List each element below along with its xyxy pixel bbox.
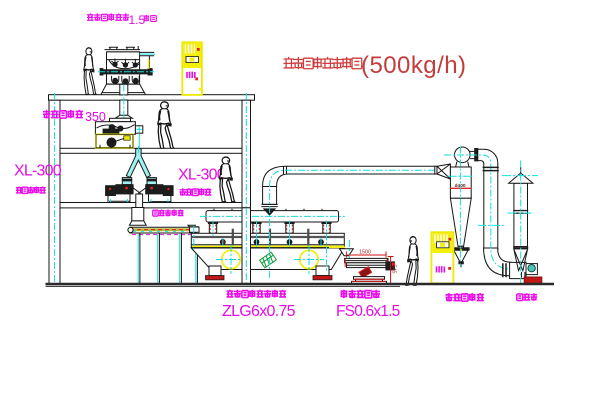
- svg-text:FS0.6x1.5: FS0.6x1.5: [336, 303, 400, 320]
- svg-text:XL-300: XL-300: [178, 166, 226, 183]
- svg-text:1.5: 1.5: [129, 13, 146, 27]
- svg-text:1500: 1500: [359, 249, 371, 255]
- svg-text:ZLG6x0.75: ZLG6x0.75: [222, 303, 296, 320]
- svg-text:(500kg/h): (500kg/h): [361, 52, 466, 79]
- svg-text:545: 545: [391, 265, 397, 274]
- svg-text:XL-300: XL-300: [14, 162, 62, 179]
